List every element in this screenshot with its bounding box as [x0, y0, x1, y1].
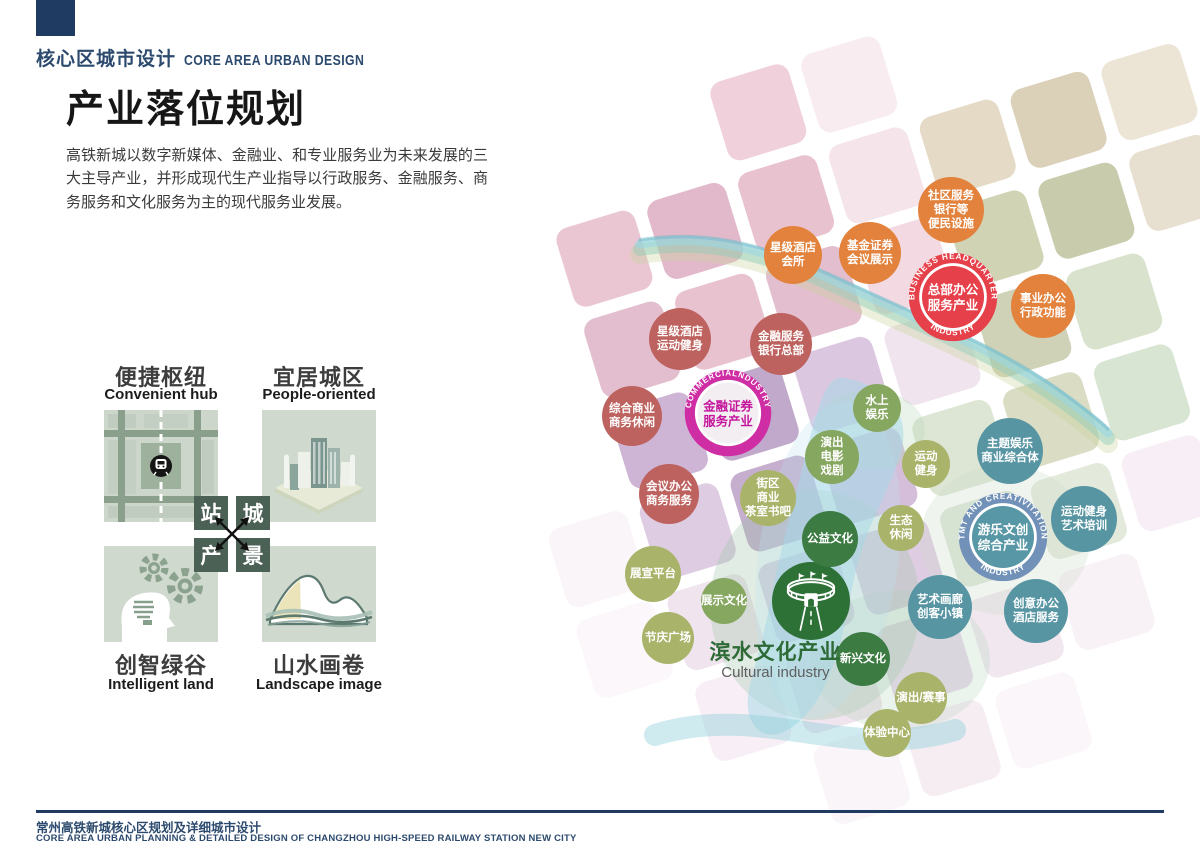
map-bubble-hotel-fitness: 星级酒店 运动健身	[649, 308, 711, 370]
map-bubble-art-gallery-town: 艺术画廊 创客小镇	[908, 575, 972, 639]
concept-sub-hub: Convenient hub	[86, 386, 236, 403]
svg-text:服务产业: 服务产业	[928, 298, 979, 313]
city-block	[1007, 69, 1109, 171]
city-block	[707, 61, 809, 163]
map-bubble-conference-office: 会议办公 商务服务	[639, 464, 699, 524]
concept-sub-green: Intelligent land	[86, 676, 236, 693]
map-bubble-public-culture: 公益文化	[802, 511, 858, 567]
map-bubble-fund-securities: 基金证券 会议展示	[839, 222, 901, 284]
map-bubble-festival-plaza: 节庆广场	[642, 612, 694, 664]
city-block	[1126, 132, 1200, 234]
svg-text:金融证券: 金融证券	[702, 398, 753, 413]
concept-sub-landscape: Landscape image	[244, 676, 394, 693]
city-block	[1063, 250, 1165, 352]
map-bubble-sports-fitness: 运动 健身	[902, 440, 950, 488]
brand-square	[36, 0, 75, 36]
map-bubble-sports-art-training: 运动健身 艺术培训	[1051, 486, 1117, 552]
map-bubble-admin-office: 事业办公 行政功能	[1011, 274, 1075, 338]
slide-page: 核心区城市设计CORE AREA URBAN DESIGN 产业落位规划 高铁新…	[0, 0, 1200, 848]
section-kicker-en: CORE AREA URBAN DESIGN	[184, 52, 364, 69]
map-bubble-finance-bank-hq: 金融服务 银行总部	[750, 313, 812, 375]
map-bubble-stadium	[772, 562, 850, 640]
city-block	[1035, 159, 1137, 261]
intro-paragraph: 高铁新城以数字新媒体、金融业、和专业服务业为未来发展的三大主导产业，并形成现代生…	[66, 144, 488, 214]
city-block	[992, 669, 1094, 771]
map-bubble-water-recreation: 水上 娱乐	[853, 384, 901, 432]
footer-rule	[36, 810, 1164, 813]
map-bubble-hotel-club: 星级酒店 会所	[764, 226, 822, 284]
page-title: 产业落位规划	[66, 78, 306, 133]
map-bubble-creative-office: 创意办公 酒店服务	[1004, 579, 1068, 643]
map-bubble-theme-entertainment: 主题娱乐 商业综合体	[977, 418, 1043, 484]
map-bubble-block-commerce: 街区 商业 茶室书吧	[740, 470, 796, 526]
map-hub-business-headquarter: BUSINESS HEADQUARTERINDUSTRY总部办公服务产业	[906, 250, 1000, 344]
stadium-icon	[782, 566, 840, 636]
svg-text:总部办公: 总部办公	[928, 282, 979, 297]
city-block	[798, 33, 900, 135]
map-bubble-commercial-leisure: 综合商业 商务休闲	[602, 386, 662, 446]
waterfront-label-en: Cultural industry	[693, 664, 858, 681]
svg-text:服务产业: 服务产业	[703, 413, 753, 428]
section-kicker-zh: 核心区城市设计	[36, 49, 176, 70]
mountains-icon	[262, 546, 376, 642]
map-hub-tmt-creative: TMT AND CREATIVITATIONINDUSTRY游乐文创综合产业	[956, 490, 1050, 584]
section-kicker: 核心区城市设计CORE AREA URBAN DESIGN	[36, 44, 404, 71]
map-bubble-performance-cinema: 演出 电影 戏剧	[805, 430, 859, 484]
map-bubble-community-services: 社区服务 银行等 便民设施	[918, 177, 984, 243]
map-hub-commercial-industry: COMMERCIALNDUSTRY金融证券服务产业	[682, 367, 774, 459]
svg-text:游乐文创: 游乐文创	[978, 522, 1029, 537]
city-block	[826, 124, 928, 226]
map-bubble-eco-leisure: 生态 休闲	[878, 505, 924, 551]
city-block	[1098, 41, 1200, 143]
svg-text:综合产业: 综合产业	[978, 538, 1029, 553]
cross-arrows-icon	[210, 512, 254, 556]
train-icon	[150, 455, 172, 477]
city-buildings-icon	[262, 410, 376, 522]
map-bubble-experience-center: 体验中心	[863, 709, 911, 757]
tile-people-oriented	[262, 410, 376, 522]
city-block	[1119, 432, 1200, 534]
concept-sub-city: People-oriented	[244, 386, 394, 403]
city-block	[644, 180, 746, 282]
tile-landscape-image	[262, 546, 376, 642]
waterfront-label-zh: 滨水文化产业	[693, 636, 858, 666]
footer-title-en: CORE AREA URBAN PLANNING & DETAILED DESI…	[36, 833, 577, 844]
map-bubble-display-culture: 展示文化	[701, 578, 747, 624]
map-bubble-exhibition-platform: 展宣平台	[625, 546, 681, 602]
